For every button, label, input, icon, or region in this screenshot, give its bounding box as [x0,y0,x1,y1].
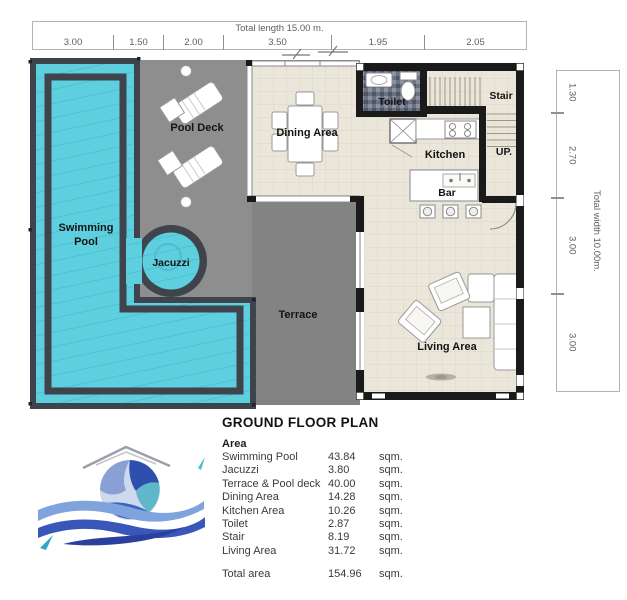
table-row: Swimming Pool 43.84 sqm. [222,451,403,464]
label-up: UP. [496,146,512,158]
table-row: Kitchen Area 10.26 sqm. [222,505,403,518]
label-bar: Bar [438,187,456,199]
wall-under-stair [424,106,486,114]
wall-kitchen-stair [479,112,486,202]
label-terrace: Terrace [279,309,318,321]
bar-stools [420,205,481,218]
table-row: Toilet 2.87 sqm. [222,518,403,531]
company-logo [38,438,208,556]
wall-right [516,63,524,400]
sofa-chaise [468,274,494,302]
area-table: Area Swimming Pool 43.84 sqm. Jacuzzi 3.… [222,437,403,582]
table-row: Living Area 31.72 sqm. [222,545,403,558]
wall-top [356,63,524,71]
toilet-room [362,70,420,116]
deck-light [181,66,192,77]
floor-plan-drawing: Swimming Pool Pool Deck Jacuzzi Terrace … [0,0,627,420]
deck-light [181,197,192,208]
table-row: Jacuzzi 3.80 sqm. [222,464,403,477]
table-row: Terrace & Pool deck 40.00 sqm. [222,478,403,491]
label-toilet: Toilet [378,96,406,108]
terrace-area [252,202,360,405]
label-stair: Stair [489,90,512,102]
area-heading: Area [222,437,403,451]
logo-spark [198,457,205,470]
label-swimming-pool-2: Pool [74,236,98,248]
label-dining-area: Dining Area [276,127,338,139]
label-living-area: Living Area [417,341,477,353]
break-marks [282,46,348,59]
label-pool-deck: Pool Deck [170,122,224,134]
label-jacuzzi: Jacuzzi [152,257,189,269]
logo-wave-dark [38,517,205,538]
toilet-tank [400,72,417,80]
coffee-table [463,307,490,338]
wall-toilet-bottom [356,111,426,117]
wall-stair-bottom [482,196,518,203]
wall-toilet-left [356,63,363,117]
label-swimming-pool: Swimming [58,222,113,234]
table-row: Stair 8.19 sqm. [222,531,403,544]
floor-plan-page: { "title": "GROUND FLOOR PLAN", "dimensi… [0,0,627,600]
label-kitchen: Kitchen [425,149,466,161]
table-row: Dining Area 14.28 sqm. [222,491,403,504]
table-total-row: Total area 154.96 sqm. [222,568,403,581]
logo-spark [40,535,53,550]
page-title: GROUND FLOOR PLAN [222,415,379,430]
